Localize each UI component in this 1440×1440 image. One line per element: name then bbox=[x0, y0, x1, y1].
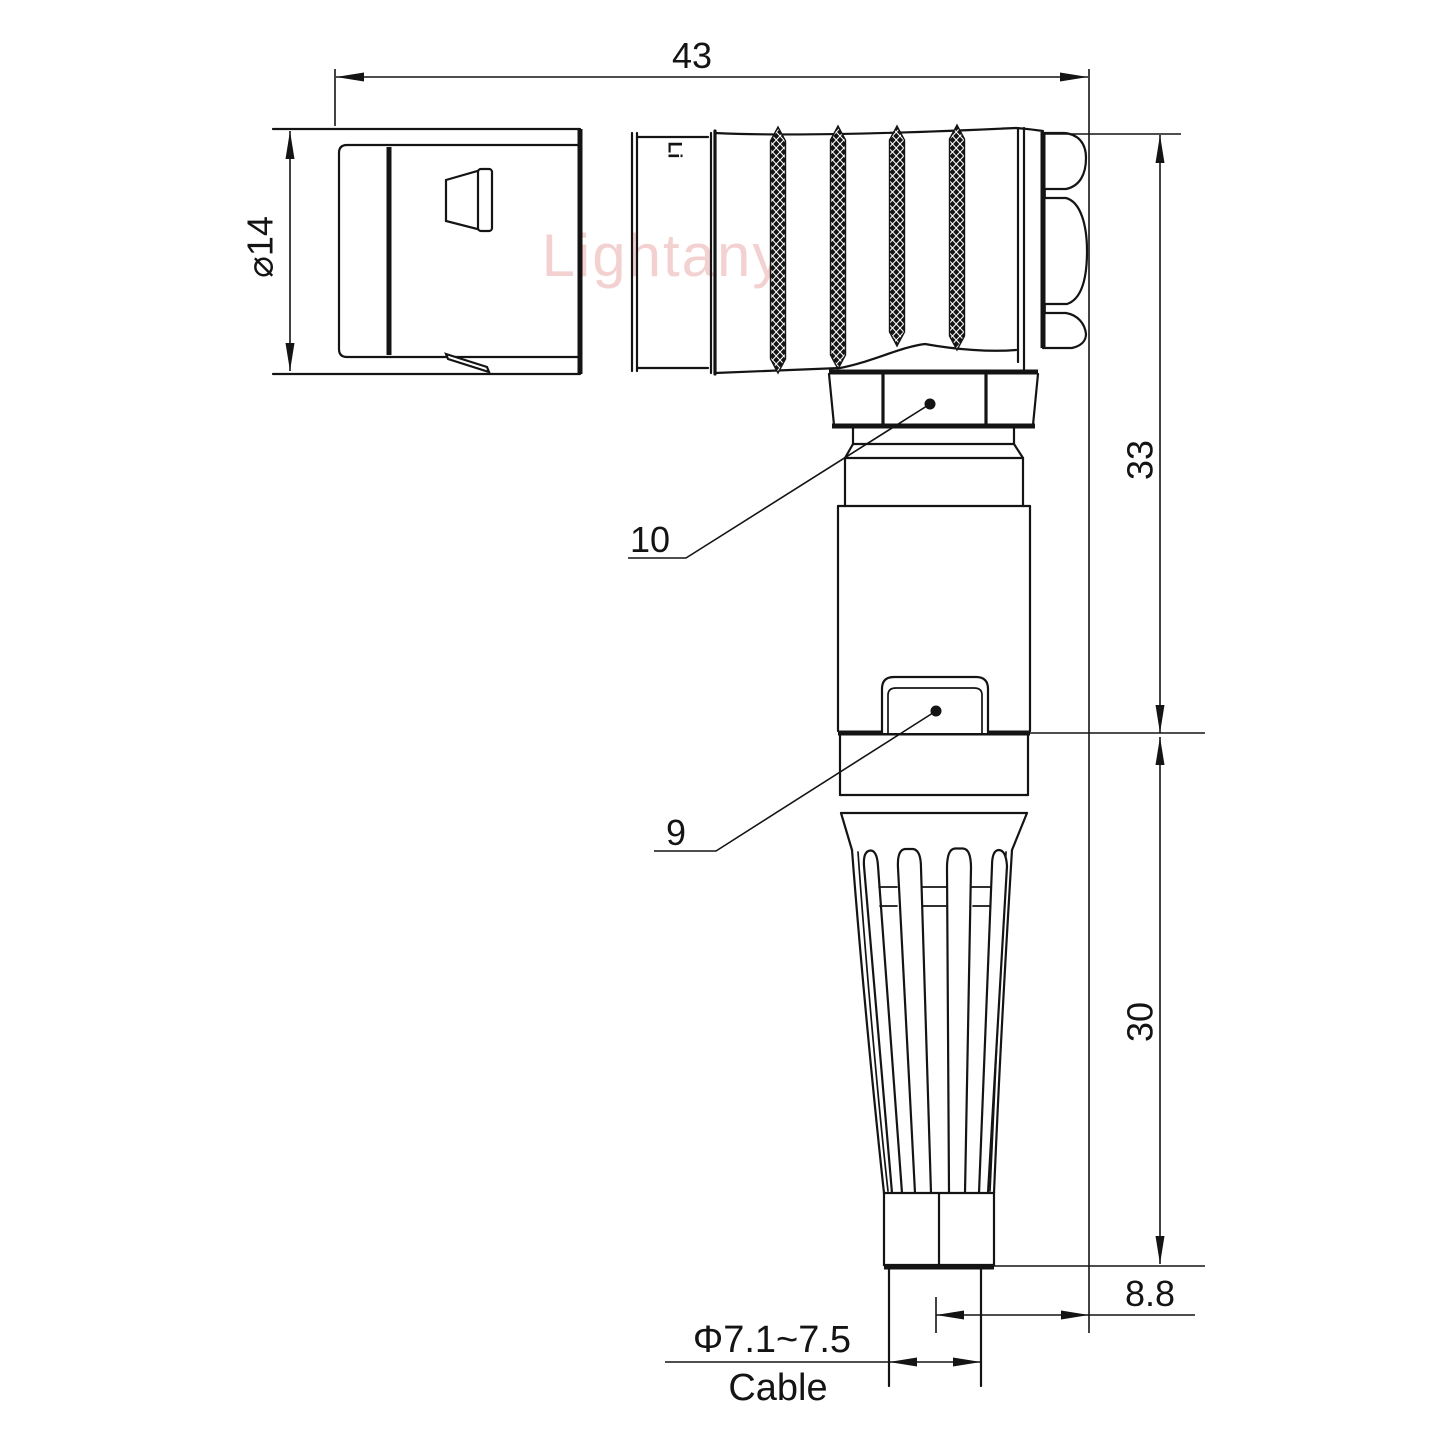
boot-rib bbox=[947, 849, 971, 1194]
dim-overall-length-text: 43 bbox=[672, 35, 712, 76]
dimension-axis-offset: 8.8 bbox=[936, 1273, 1195, 1333]
dim-cable-diameter-text: Φ7.1~7.5 bbox=[693, 1319, 851, 1361]
arrowhead-icon bbox=[1060, 73, 1088, 82]
dim-lower-height-text: 30 bbox=[1120, 1002, 1161, 1042]
polarizing-key bbox=[446, 169, 492, 231]
leader-dot-icon bbox=[931, 706, 942, 717]
leader-label-coupling-nut: 10 bbox=[628, 399, 936, 561]
plug-shell bbox=[273, 129, 580, 374]
body-marking-text: Li bbox=[664, 142, 685, 159]
cable-ferrule bbox=[884, 1193, 994, 1267]
dimension-plug-diameter: ⌀14 bbox=[240, 131, 295, 371]
arrowhead-icon bbox=[1156, 1236, 1165, 1264]
part-label-9-text: 9 bbox=[666, 812, 686, 853]
hex-nut bbox=[829, 372, 1038, 426]
release-clip bbox=[882, 677, 988, 733]
part-label-10-text: 10 bbox=[630, 519, 670, 560]
arrowhead-icon bbox=[1156, 705, 1165, 733]
leader-dot-icon bbox=[925, 399, 936, 410]
knurl-band bbox=[890, 126, 905, 346]
boot-collar bbox=[840, 735, 1028, 850]
arrowhead-icon bbox=[936, 1311, 964, 1320]
coupling-nut-scallops bbox=[1016, 128, 1087, 372]
dim-axis-offset-text: 8.8 bbox=[1125, 1273, 1175, 1314]
arrowhead-icon bbox=[1156, 135, 1165, 163]
dim-upper-height-text: 33 bbox=[1120, 440, 1161, 480]
arrowhead-icon bbox=[1061, 1311, 1089, 1320]
boot-rib bbox=[898, 849, 931, 1193]
arrowhead-icon bbox=[889, 1358, 917, 1367]
cable-word-text: Cable bbox=[728, 1367, 827, 1409]
arrowhead-icon bbox=[953, 1358, 981, 1367]
elbow-neck bbox=[838, 428, 1030, 506]
cable bbox=[889, 1269, 981, 1386]
arrowhead-icon bbox=[1156, 737, 1165, 765]
dimension-upper-height: 33 bbox=[1030, 134, 1205, 733]
strain-relief-boot bbox=[852, 849, 1012, 1194]
dim-plug-diameter-text: ⌀14 bbox=[240, 216, 281, 278]
arrowhead-icon bbox=[286, 131, 295, 159]
arrowhead-icon bbox=[286, 343, 295, 371]
technical-drawing-page: Lightany Li bbox=[0, 0, 1440, 1440]
dimension-cable-diameter: Φ7.1~7.5 Cable bbox=[665, 1319, 981, 1409]
arrowhead-icon bbox=[336, 73, 364, 82]
knurl-band bbox=[950, 125, 965, 350]
knurl-band bbox=[831, 126, 846, 369]
knurl-band bbox=[771, 127, 786, 373]
connector-drawing: Lightany Li bbox=[0, 0, 1440, 1440]
